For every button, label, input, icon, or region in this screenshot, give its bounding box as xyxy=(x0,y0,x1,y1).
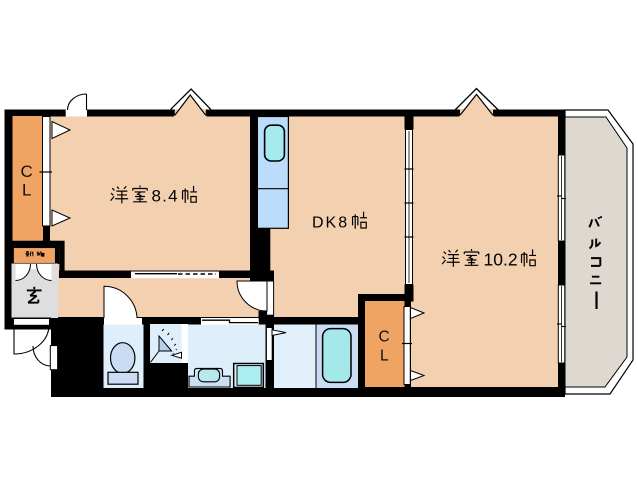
svg-text:C: C xyxy=(379,329,390,346)
svg-text:DK8: DK8 xyxy=(312,215,349,232)
svg-text:L: L xyxy=(380,348,389,365)
svg-text:8.4: 8.4 xyxy=(152,187,179,206)
svg-text:C: C xyxy=(21,162,33,181)
svg-text:L: L xyxy=(22,181,31,200)
svg-text:10.2: 10.2 xyxy=(484,250,518,270)
